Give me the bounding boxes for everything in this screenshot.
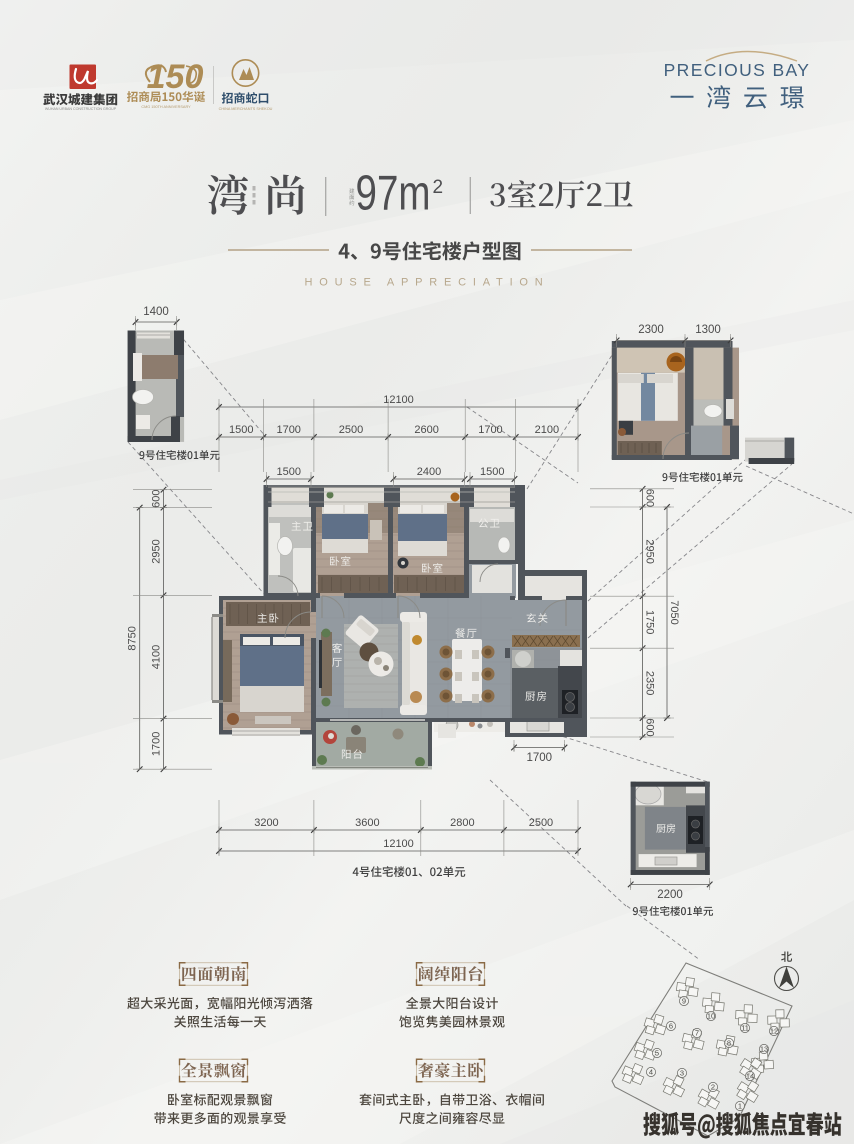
svg-text:1700: 1700 — [276, 424, 300, 436]
svg-text:2950: 2950 — [151, 539, 163, 563]
svg-text:WUHAN URBAN CONSTRUCTION GROUP: WUHAN URBAN CONSTRUCTION GROUP — [45, 107, 117, 111]
svg-text:CHINA MERCHANTS SHEKOU: CHINA MERCHANTS SHEKOU — [219, 107, 273, 111]
svg-text:11: 11 — [741, 1024, 749, 1033]
svg-text:7050: 7050 — [668, 600, 680, 624]
svg-text:13: 13 — [760, 1045, 768, 1054]
svg-text:3: 3 — [680, 1069, 684, 1078]
svg-text:2300: 2300 — [638, 324, 664, 336]
svg-text:PRECIOUS BAY: PRECIOUS BAY — [664, 60, 811, 80]
svg-text:600: 600 — [644, 489, 656, 507]
svg-text:1700: 1700 — [527, 752, 553, 764]
svg-text:8750: 8750 — [127, 626, 139, 650]
svg-text:1750: 1750 — [644, 610, 656, 634]
svg-text:2100: 2100 — [535, 424, 559, 436]
svg-text:CMG 150TH ANNIVERSARY: CMG 150TH ANNIVERSARY — [141, 105, 191, 109]
svg-text:2200: 2200 — [657, 889, 683, 901]
svg-text:3200: 3200 — [254, 817, 278, 829]
svg-text:1700: 1700 — [478, 424, 502, 436]
svg-text:4100: 4100 — [151, 645, 163, 669]
svg-text:7: 7 — [695, 1029, 699, 1038]
svg-text:1500: 1500 — [229, 424, 253, 436]
svg-text:8: 8 — [727, 1039, 731, 1048]
svg-text:150: 150 — [147, 58, 204, 96]
svg-text:1500: 1500 — [277, 466, 301, 478]
svg-text:9: 9 — [682, 997, 686, 1006]
svg-text:5: 5 — [655, 1049, 659, 1058]
svg-text:1400: 1400 — [143, 306, 169, 318]
svg-text:1700: 1700 — [151, 732, 163, 756]
svg-text:12: 12 — [770, 1027, 778, 1036]
svg-text:2: 2 — [433, 177, 444, 198]
svg-text:12100: 12100 — [383, 838, 414, 850]
svg-text:6: 6 — [669, 1022, 673, 1031]
svg-text:2400: 2400 — [417, 466, 441, 478]
svg-text:2: 2 — [711, 1083, 715, 1092]
svg-text:2800: 2800 — [450, 817, 474, 829]
svg-text:HOUSE APPRECIATION: HOUSE APPRECIATION — [304, 277, 549, 289]
svg-text:1: 1 — [738, 1102, 742, 1111]
svg-text:97m: 97m — [356, 167, 431, 221]
svg-text:1500: 1500 — [480, 466, 504, 478]
svg-text:12100: 12100 — [383, 394, 414, 406]
svg-text:14: 14 — [746, 1072, 754, 1081]
svg-text:2600: 2600 — [414, 424, 438, 436]
svg-text:10: 10 — [707, 1012, 715, 1021]
svg-text:1300: 1300 — [695, 324, 721, 336]
svg-text:2950: 2950 — [644, 539, 656, 563]
svg-text:2500: 2500 — [529, 817, 553, 829]
svg-text:4: 4 — [649, 1068, 653, 1077]
svg-text:2350: 2350 — [644, 671, 656, 695]
svg-text:600: 600 — [151, 489, 163, 507]
svg-text:600: 600 — [644, 718, 656, 736]
svg-text:2500: 2500 — [339, 424, 363, 436]
svg-text:3600: 3600 — [355, 817, 379, 829]
